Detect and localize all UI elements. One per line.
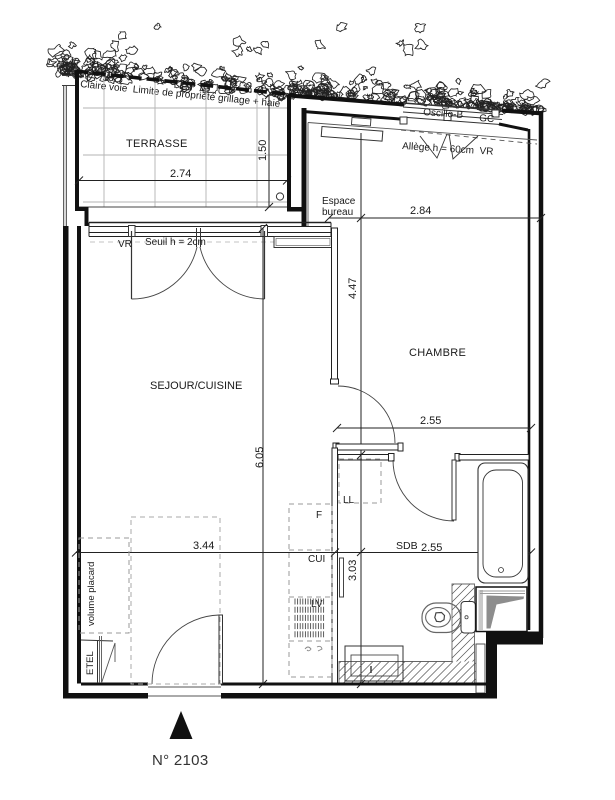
svg-text:2.74: 2.74 xyxy=(170,168,191,180)
svg-text:bureau: bureau xyxy=(322,207,353,218)
svg-text:CHAMBRE: CHAMBRE xyxy=(409,347,466,359)
svg-text:3.44: 3.44 xyxy=(193,540,214,552)
svg-text:Espace: Espace xyxy=(322,196,356,207)
svg-text:LL: LL xyxy=(343,495,355,506)
svg-text:ETEL: ETEL xyxy=(85,651,96,675)
svg-text:3.03: 3.03 xyxy=(347,560,359,581)
svg-text:volume placard: volume placard xyxy=(86,562,97,626)
svg-text:2.84: 2.84 xyxy=(410,205,431,217)
svg-text:F: F xyxy=(316,510,322,521)
svg-text:2.55: 2.55 xyxy=(420,415,441,427)
svg-text:TERRASSE: TERRASSE xyxy=(126,138,188,150)
svg-text:GC: GC xyxy=(479,113,495,125)
svg-text:4.47: 4.47 xyxy=(347,278,359,299)
svg-text:1.50: 1.50 xyxy=(257,140,269,161)
svg-text:CUI: CUI xyxy=(308,554,325,565)
svg-text:SDB: SDB xyxy=(396,540,418,552)
svg-text:SEJOUR/CUISINE: SEJOUR/CUISINE xyxy=(150,380,242,392)
svg-text:VR: VR xyxy=(118,239,132,250)
svg-text:2.55: 2.55 xyxy=(421,542,442,554)
svg-text:N° 2103: N° 2103 xyxy=(152,752,208,769)
svg-text:6.05: 6.05 xyxy=(254,447,266,468)
svg-text:Seuil h = 2cm: Seuil h = 2cm xyxy=(145,237,206,248)
